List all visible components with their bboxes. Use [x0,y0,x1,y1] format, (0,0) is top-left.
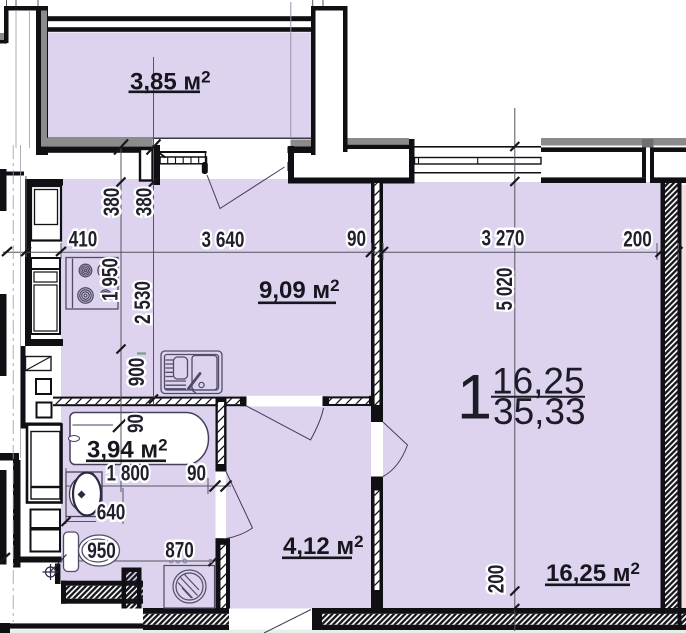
svg-text:16,25 м2: 16,25 м2 [546,559,640,587]
svg-text:410: 410 [69,228,98,253]
svg-text:1 950: 1 950 [99,258,124,301]
svg-text:2 530: 2 530 [131,281,156,324]
svg-text:900: 900 [125,358,150,387]
svg-text:90: 90 [187,462,206,487]
svg-text:90: 90 [347,227,366,252]
svg-text:3,94 м2: 3,94 м2 [87,436,168,464]
svg-text:4,12 м2: 4,12 м2 [283,532,364,560]
svg-text:380: 380 [100,188,125,217]
svg-text:90: 90 [124,414,149,433]
svg-text:1: 1 [457,363,492,433]
svg-text:950: 950 [87,539,116,564]
svg-text:1 800: 1 800 [107,462,150,487]
svg-text:640: 640 [97,501,126,526]
svg-text:9,09 м2: 9,09 м2 [259,276,340,304]
svg-text:3 270: 3 270 [482,227,525,252]
svg-text:200: 200 [485,565,510,594]
svg-text:3 640: 3 640 [202,228,245,253]
svg-text:5 020: 5 020 [493,268,518,311]
svg-text:380: 380 [133,188,158,217]
svg-text:870: 870 [165,539,194,564]
svg-text:200: 200 [623,228,652,253]
